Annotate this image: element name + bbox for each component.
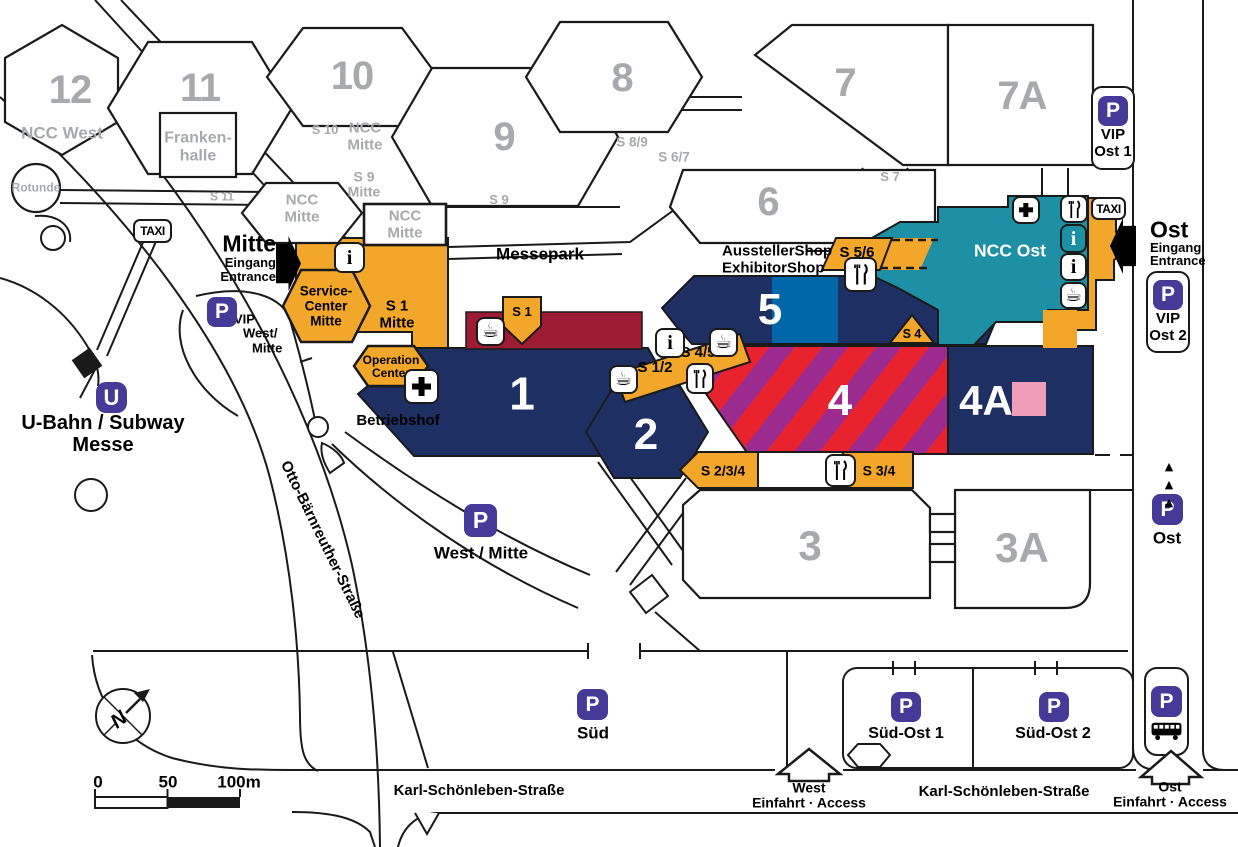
shop-line2: ExhibitorShop <box>722 260 832 277</box>
west-access-sub: Einfahrt · Access <box>752 796 866 811</box>
escalator-icon <box>1157 457 1181 511</box>
ubahn-badge[interactable]: U <box>96 382 127 413</box>
hall-7-label: 7 <box>834 61 855 105</box>
vip-west-mitte-label: VIP West/ Mitte <box>234 313 282 356</box>
s89-label: S 8/9 <box>616 136 648 151</box>
hall-3-label: 3 <box>798 523 821 569</box>
ncc-ost-label: NCC Ost <box>974 241 1046 260</box>
vip-west-line2: West/ <box>234 327 282 341</box>
scale-zero: 0 <box>93 774 102 793</box>
vip-ost2-line1: VIP <box>1156 311 1180 327</box>
vip-ost1-line2: Ost 1 <box>1094 144 1132 160</box>
hall-5-label: 5 <box>758 286 782 334</box>
hall-10-label: 10 <box>331 54 374 98</box>
first-aid-icon-betriebshof[interactable] <box>404 369 439 404</box>
ncc-mitte-upper-label: NCC Mitte <box>348 121 383 154</box>
coffee-icon-hall1[interactable] <box>476 317 505 346</box>
s11-label: S 11 <box>210 190 234 203</box>
ubahn-label: U-Bahn / Subway Messe <box>21 412 184 456</box>
service-center-line3: Mitte <box>300 314 353 329</box>
info-glyph: i <box>1071 257 1077 277</box>
ncc-west-label: NCC West <box>21 125 103 144</box>
frankenhalle-label: Franken- halle <box>164 129 232 164</box>
hall-9-label: 9 <box>493 115 514 159</box>
mitte-entrance-line2: Entrance <box>220 270 276 284</box>
frankenhalle-line1: Franken- <box>164 129 232 147</box>
taxi-badge-ost[interactable]: TAXI <box>1091 197 1126 220</box>
parking-vip-ost2-badge[interactable]: P VIP Ost 2 <box>1146 271 1190 353</box>
betriebshof-label: Betriebshof <box>356 413 439 430</box>
s1-label: S 1 <box>512 305 532 319</box>
first-aid-icon-ncc-ost[interactable] <box>1012 196 1040 224</box>
bus-icon <box>1151 721 1182 741</box>
parking-west-mitte-label: West / Mitte <box>434 545 528 564</box>
service-center-line1: Service- <box>300 285 353 300</box>
vip-ost2-line2: Ost 2 <box>1149 328 1187 344</box>
info-icon-ncc-ost[interactable]: i <box>1060 253 1087 281</box>
coffee-icon-s45[interactable] <box>709 328 738 357</box>
ost-entrance-line2: Entrance <box>1150 254 1206 268</box>
restaurant-icon-s56[interactable] <box>844 257 877 292</box>
exhibitor-shop-label: AusstellerShop ExhibitorShop <box>722 244 832 277</box>
medical-cross-icon <box>412 377 431 396</box>
ncc-mitte-hex-line2: Mitte <box>285 209 320 226</box>
s9-mitte-line1: S 9 <box>348 170 381 185</box>
s7-label: S 7 <box>880 170 900 184</box>
hall-8-label: 8 <box>611 56 632 100</box>
s67-label: S 6/7 <box>658 151 690 166</box>
ncc-mitte-upper-line2: Mitte <box>348 137 383 154</box>
west-access-title: West <box>752 781 866 796</box>
s1-mitte-label: S 1 Mitte <box>380 299 415 332</box>
frankenhalle-line2: halle <box>164 147 232 165</box>
karl-street-ost-label: Karl-Schönleben-Straße <box>919 784 1090 801</box>
ncc-mitte-box-line2: Mitte <box>388 225 423 242</box>
ost-access-label: Ost Einfahrt · Access <box>1113 780 1227 811</box>
parking-icon: P <box>1098 96 1128 126</box>
hall-3a-label: 3A <box>995 525 1049 571</box>
vip-west-line3: Mitte <box>234 341 282 355</box>
ost-entrance-title: Ost <box>1150 217 1188 242</box>
ncc-mitte-hex-label: NCC Mitte <box>285 193 320 226</box>
hall-12-label: 12 <box>49 68 92 112</box>
service-center-label: Service- Center Mitte <box>300 285 353 330</box>
ost-access-sub: Einfahrt · Access <box>1113 795 1227 810</box>
vip-ost1-line1: VIP <box>1101 127 1125 143</box>
hall-6-label: 6 <box>757 180 778 224</box>
restaurant-icon-s45[interactable] <box>686 363 714 394</box>
info-glyph: i <box>347 248 353 268</box>
parking-vip-ost1-badge[interactable]: P VIP Ost 1 <box>1091 86 1135 170</box>
s10-label: S 10 <box>312 123 339 137</box>
ncc-mitte-box-line1: NCC <box>388 209 423 226</box>
s9-label: S 9 <box>489 193 509 207</box>
s9-mitte-line2: Mitte <box>348 185 381 200</box>
parking-ost-label: Ost <box>1153 530 1181 549</box>
messe-map: 12 NCC West 11 Franken- halle Rotunde 10… <box>0 0 1238 847</box>
service-center-line2: Center <box>300 300 353 315</box>
parking-icon-sued-ost2[interactable]: P <box>1039 692 1069 722</box>
ncc-ost-walk-stem <box>1043 310 1077 348</box>
info-icon-hall1[interactable]: i <box>655 328 685 358</box>
info-glyph: i <box>1071 229 1077 249</box>
s34-label: S 3/4 <box>863 463 896 478</box>
info-icon-mitte[interactable]: i <box>334 242 365 273</box>
mitte-entrance-title: Mitte <box>222 231 276 256</box>
parking-icon: P <box>1153 280 1183 310</box>
taxi-badge-mitte[interactable]: TAXI <box>133 219 172 243</box>
ubahn-line1: U-Bahn / Subway <box>21 412 184 434</box>
medical-cross-icon <box>1019 203 1034 218</box>
shop-line1: AusstellerShop <box>722 244 832 261</box>
ncc-mitte-upper-line1: NCC <box>348 121 383 138</box>
ncc-mitte-box-label: NCC Mitte <box>388 209 423 242</box>
s12-label: S 1/2 <box>637 360 672 377</box>
hall-2-label: 2 <box>634 411 658 459</box>
s234-label: S 2/3/4 <box>701 463 745 478</box>
hall-4a-pink-square <box>1012 382 1046 416</box>
ncc-mitte-hex-line1: NCC <box>285 193 320 210</box>
vip-west-line1: VIP <box>234 313 282 327</box>
restaurant-icon-s34[interactable] <box>825 454 856 487</box>
parking-icon-sued[interactable]: P <box>577 689 608 720</box>
hall-7a-label: 7A <box>997 74 1046 118</box>
coffee-icon-s12[interactable] <box>609 365 638 394</box>
parking-sued-ost1-label: Süd-Ost 1 <box>868 725 944 743</box>
info-glyph: i <box>667 333 673 353</box>
karl-street-west-label: Karl-Schönleben-Straße <box>394 783 565 800</box>
parking-sued-ost2-label: Süd-Ost 2 <box>1015 725 1091 743</box>
parking-icon-west-mitte[interactable]: P <box>464 504 497 537</box>
messepark-label: Messepark <box>496 246 584 265</box>
parking-icon-sued-ost1[interactable]: P <box>891 692 921 722</box>
parking-icon-bus-lot[interactable]: P <box>1151 686 1182 717</box>
ubahn-line2: Messe <box>21 434 184 456</box>
scale-fifty: 50 <box>159 774 178 793</box>
parking-sued-label: Süd <box>577 725 609 744</box>
rotunde-label: Rotunde <box>12 181 61 194</box>
parking-icon-vip-west-mitte[interactable]: P <box>207 297 237 327</box>
info-icon-ncc-ost-teal[interactable]: i <box>1060 224 1087 253</box>
s1-mitte-line1: S 1 <box>380 299 415 316</box>
hall-4a-label: 4A <box>959 378 1013 424</box>
restaurant-icon-ncc-ost[interactable] <box>1060 195 1088 223</box>
s9-mitte-label: S 9 Mitte <box>348 170 381 201</box>
ost-access-title: Ost <box>1113 780 1227 795</box>
s1-mitte-line2: Mitte <box>380 315 415 332</box>
hall-1-label: 1 <box>509 369 535 420</box>
coffee-icon-ncc-ost[interactable] <box>1060 282 1087 309</box>
hall-4-label: 4 <box>828 377 852 425</box>
s4-label: S 4 <box>903 328 922 342</box>
hall-11-label: 11 <box>180 66 220 110</box>
scale-hundred: 100m <box>217 774 260 793</box>
west-access-label: West Einfahrt · Access <box>752 781 866 812</box>
